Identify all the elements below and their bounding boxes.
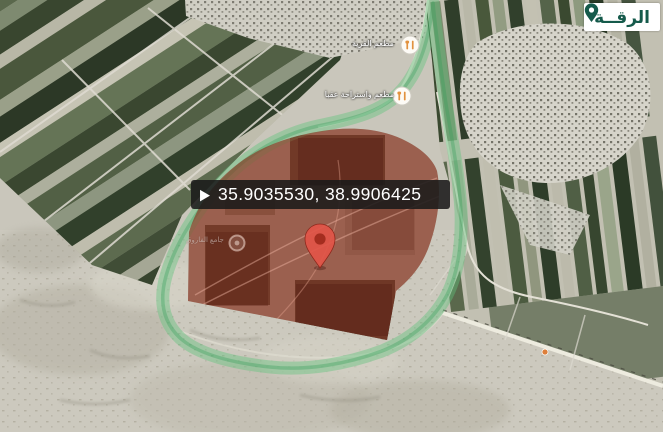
- location-pin-icon: [584, 3, 599, 23]
- poi-circle-icon[interactable]: [230, 236, 245, 251]
- place-badge-label: الرقــة: [594, 9, 650, 26]
- restaurant-label-1: مطعم القرية: [352, 40, 398, 49]
- coordinates-value: 35.9035530, 38.9906425: [218, 184, 421, 205]
- restaurant-label-2: مطعم واستراحة عقبا: [336, 91, 394, 100]
- place-badge: الرقــة: [584, 3, 660, 31]
- mosque-label: جامع الفاروق: [186, 237, 230, 245]
- restaurant-marker-2[interactable]: [393, 87, 411, 105]
- road-dot: [542, 349, 548, 355]
- coordinates-overlay: ▶ 35.9035530, 38.9906425: [191, 180, 450, 209]
- play-triangle-icon: ▶: [200, 187, 210, 202]
- restaurant-marker-1[interactable]: [401, 36, 419, 54]
- satellite-map[interactable]: مطعم القرية مطعم واستراحة عقبا جامع الفا…: [0, 0, 663, 432]
- satellite-basemap: [0, 0, 663, 432]
